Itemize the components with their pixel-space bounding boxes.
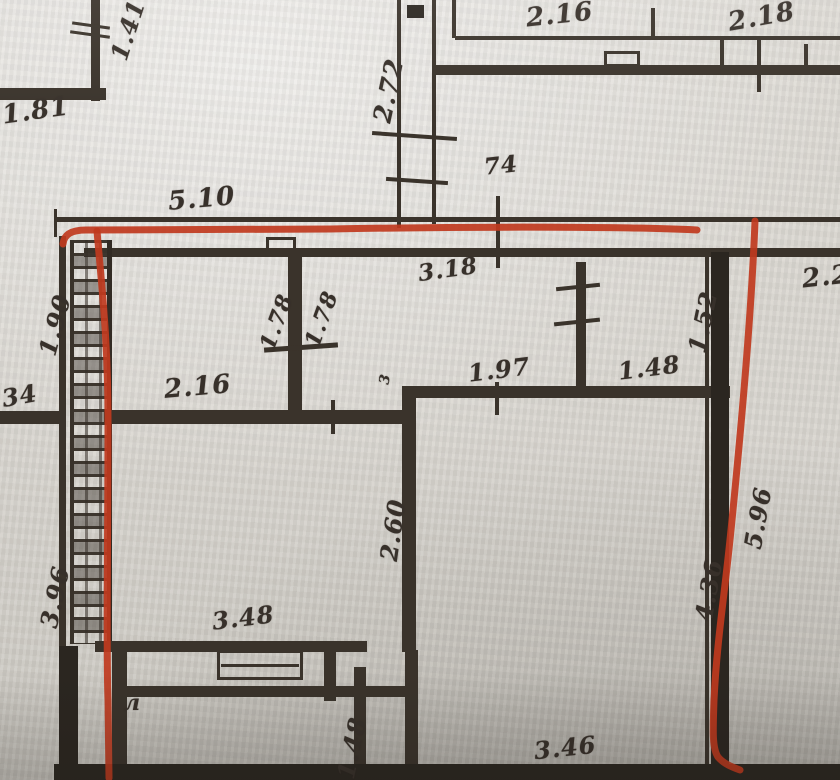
wall-segment [59,646,78,780]
dimension-tick [720,38,724,68]
interior-wall [288,250,302,422]
dimension-tick [757,38,761,92]
red-outline-top [63,227,697,244]
bottom-wall-band [54,764,840,780]
hatched-wall [70,240,112,644]
wall-segment [0,411,60,424]
dimension-tick [331,400,335,434]
dimension-label-1-78-right: 1.78 [302,288,342,350]
dimension-label-1-90: 1.90 [36,292,75,359]
wall-segment [432,0,436,224]
dimension-label-1-81: 1.81 [1,93,71,128]
partition-wall [576,262,586,388]
floor-plan-photo: 1.41 1.81 5.10 2.72 2.16 2.18 74 3.18 2.… [0,0,840,780]
window-marker [604,51,640,67]
dimension-tick [496,196,500,268]
dimension-label-2-16-mid: 2.16 [163,371,232,403]
dimension-tick [54,209,57,237]
room-letter-label: л [124,692,141,714]
dimension-tick [495,382,499,415]
dimension-tick [372,131,457,141]
wall-segment [54,217,840,222]
dimension-label-3-48: 3.48 [211,602,276,633]
wall-segment [455,36,840,40]
dimension-label-1-41: 1.41 [107,0,149,63]
dimension-tick [70,30,110,39]
dimension-label-2-2: 2.2 [801,262,840,293]
dimension-label-74: 74 [483,152,519,178]
wall-segment [116,686,414,697]
dimension-label-3: 3 [378,372,394,385]
interior-wall [405,650,418,780]
radiator-line [221,664,299,667]
dimension-label-2-72: 2.72 [369,56,407,125]
dimension-tick [452,0,456,38]
dimension-label-5-10: 5.10 [167,183,236,215]
dimension-label-3-46: 3.46 [533,733,598,763]
column-marker [407,5,424,18]
interior-wall [104,410,405,424]
dimension-label-3-96: 3.96 [37,564,73,630]
dimension-label-34: 34 [0,381,39,411]
dimension-label-3-18: 3.18 [417,254,480,285]
dimension-label-1-97: 1.97 [467,354,532,385]
interior-wall [410,386,730,398]
dimension-tick [804,44,808,70]
wall-segment [91,0,100,101]
dimension-label-5-96: 5.96 [741,485,775,551]
dimension-tick [651,8,655,40]
dimension-label-1-48-mid: 1.48 [617,352,682,383]
dimension-label-2-18: 2.18 [726,0,797,36]
dimension-label-2-16-top: 2.16 [525,0,595,31]
dimension-tick [386,177,448,185]
